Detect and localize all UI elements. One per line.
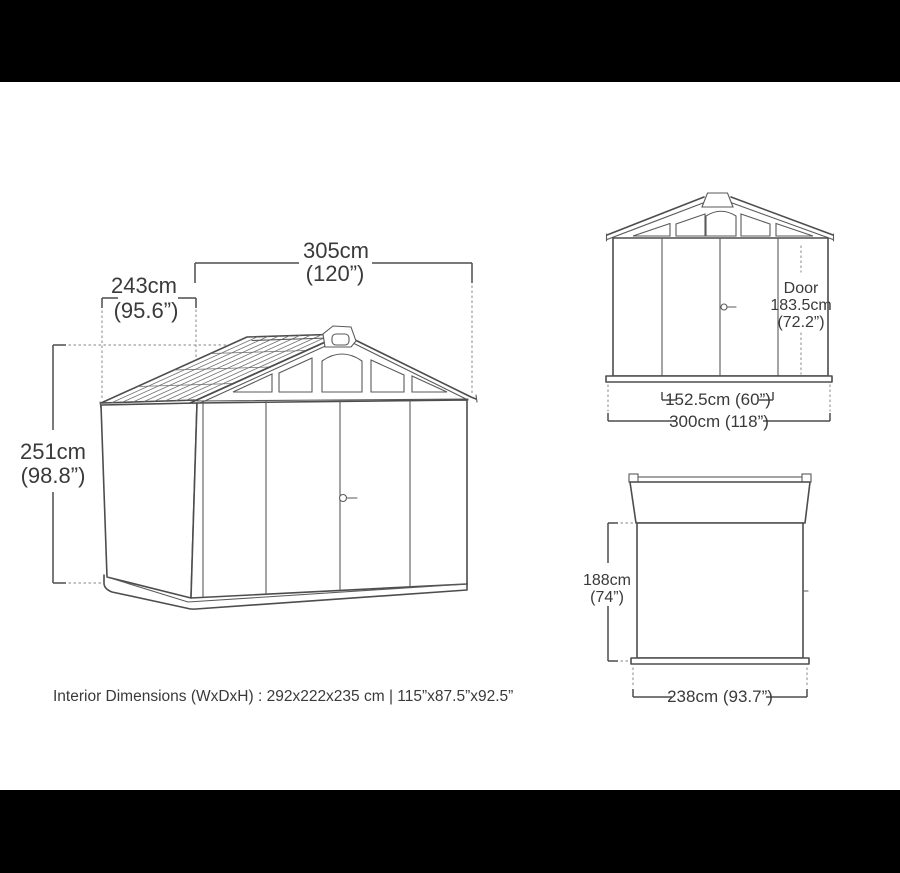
side-roof (629, 474, 811, 523)
front-roof-vent (702, 193, 733, 207)
front-base (606, 376, 832, 382)
side-depth-dimension: 238cm (93.7”) (633, 668, 807, 706)
main-depth-label-in: (95.6”) (114, 298, 179, 323)
product-dimension-diagram: 305cm (120”) 243cm (95.6”) 251cm (98.8”) (0, 0, 900, 873)
side-height-dimension: 188cm (74”) (583, 523, 634, 661)
main-perspective-view: 305cm (120”) 243cm (95.6”) 251cm (98.8”) (20, 238, 477, 609)
main-height-label-cm: 251cm (20, 439, 86, 464)
letterbox-bottom-bar (0, 790, 900, 873)
main-depth-label-cm: 243cm (111, 273, 177, 298)
diagram-canvas: 305cm (120”) 243cm (95.6”) 251cm (98.8”) (0, 0, 900, 873)
main-walls (101, 400, 467, 598)
front-overall-width-label: 300cm (118”) (669, 412, 769, 431)
side-height-label-cm: 188cm (583, 572, 631, 589)
side-height-label-in: (74”) (590, 589, 624, 606)
side-depth-label: 238cm (93.7”) (667, 687, 773, 706)
side-roof-shingles (630, 482, 810, 523)
side-elevation-view: 188cm (74”) 238cm (93.7”) (583, 474, 811, 706)
front-door-height-dimension: Door 183.5cm (72.2”) (770, 246, 831, 374)
main-side-wall (101, 403, 197, 598)
main-width-label-in: (120”) (306, 261, 365, 286)
side-wall (631, 523, 809, 664)
front-door-width-dimension: 152.5cm (60”) (662, 390, 773, 409)
letterbox-top-bar (0, 0, 900, 82)
front-door-height-in: (72.2”) (777, 314, 824, 331)
front-door-height-cm: 183.5cm (770, 297, 831, 314)
main-roof-vent (323, 326, 356, 347)
front-elevation-view: Door 183.5cm (72.2”) 152.5cm (60”) 300cm… (606, 193, 834, 431)
main-width-label-cm: 305cm (303, 238, 369, 263)
front-door-width-label: 152.5cm (60”) (665, 390, 771, 409)
main-shed-drawing (100, 326, 477, 609)
main-front-wall (191, 400, 467, 598)
front-door-label: Door (784, 280, 819, 297)
side-base (631, 658, 809, 664)
interior-dimensions-caption: Interior Dimensions (WxDxH) : 292x222x23… (53, 688, 513, 705)
front-door-handle (721, 304, 736, 310)
main-height-label-in: (98.8”) (21, 463, 86, 488)
